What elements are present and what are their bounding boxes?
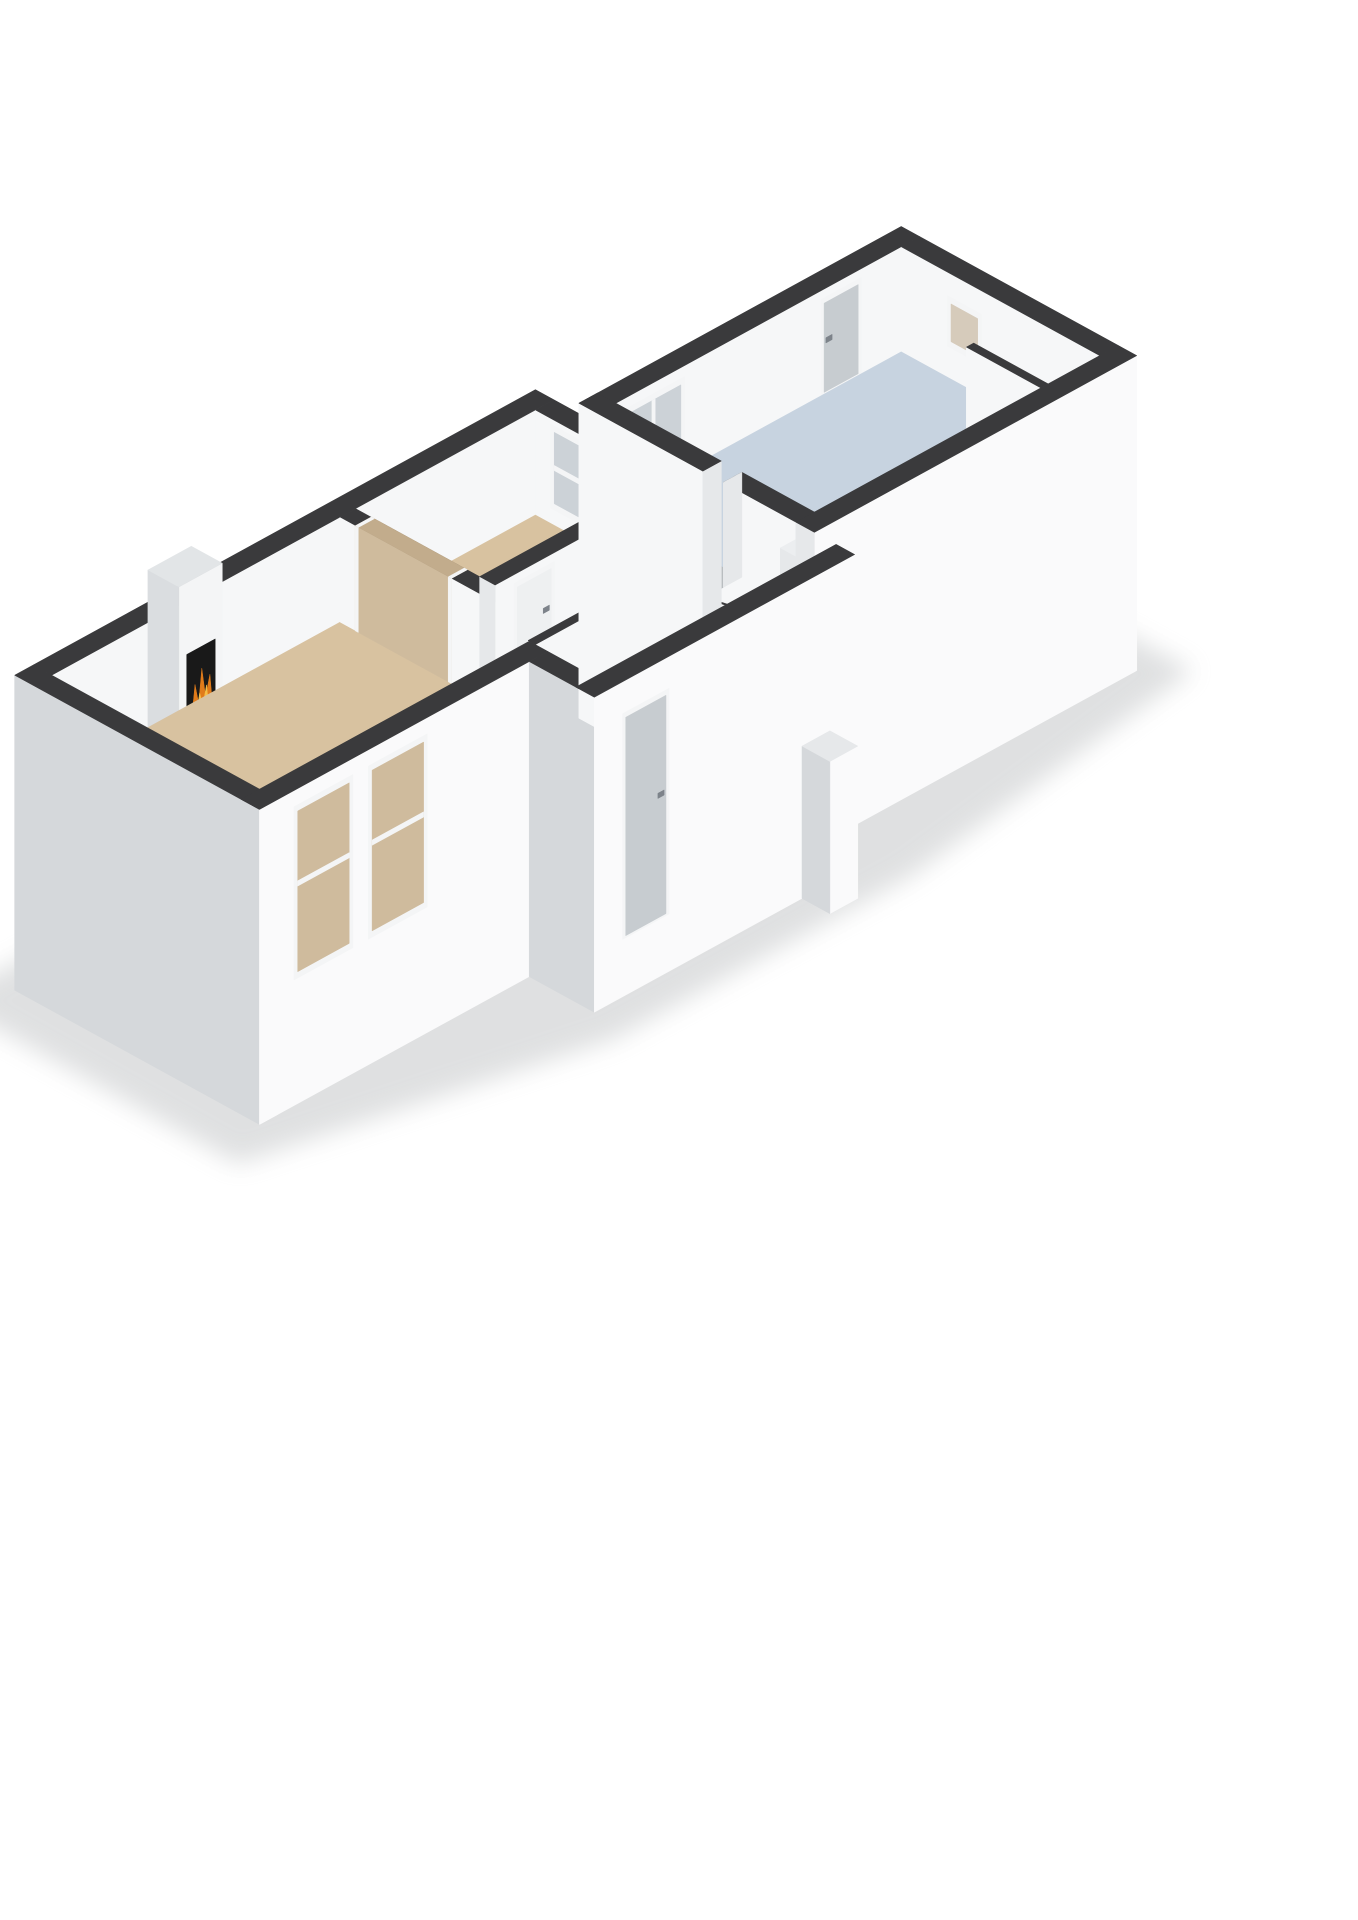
living-east-wall-opening-jamb <box>448 577 451 684</box>
exterior-utility-box-face <box>830 746 858 914</box>
hall-front-wall-door-leaf <box>626 695 666 936</box>
living-east-wall-opening-jamb <box>355 526 358 633</box>
floorplan-scene <box>0 226 1193 1163</box>
floorplan-3d-canvas <box>0 0 1358 1920</box>
exterior-utility-box-cap <box>802 746 830 914</box>
floorplan-3d <box>0 0 1358 1920</box>
kitchen-opening-jamb <box>723 472 742 587</box>
